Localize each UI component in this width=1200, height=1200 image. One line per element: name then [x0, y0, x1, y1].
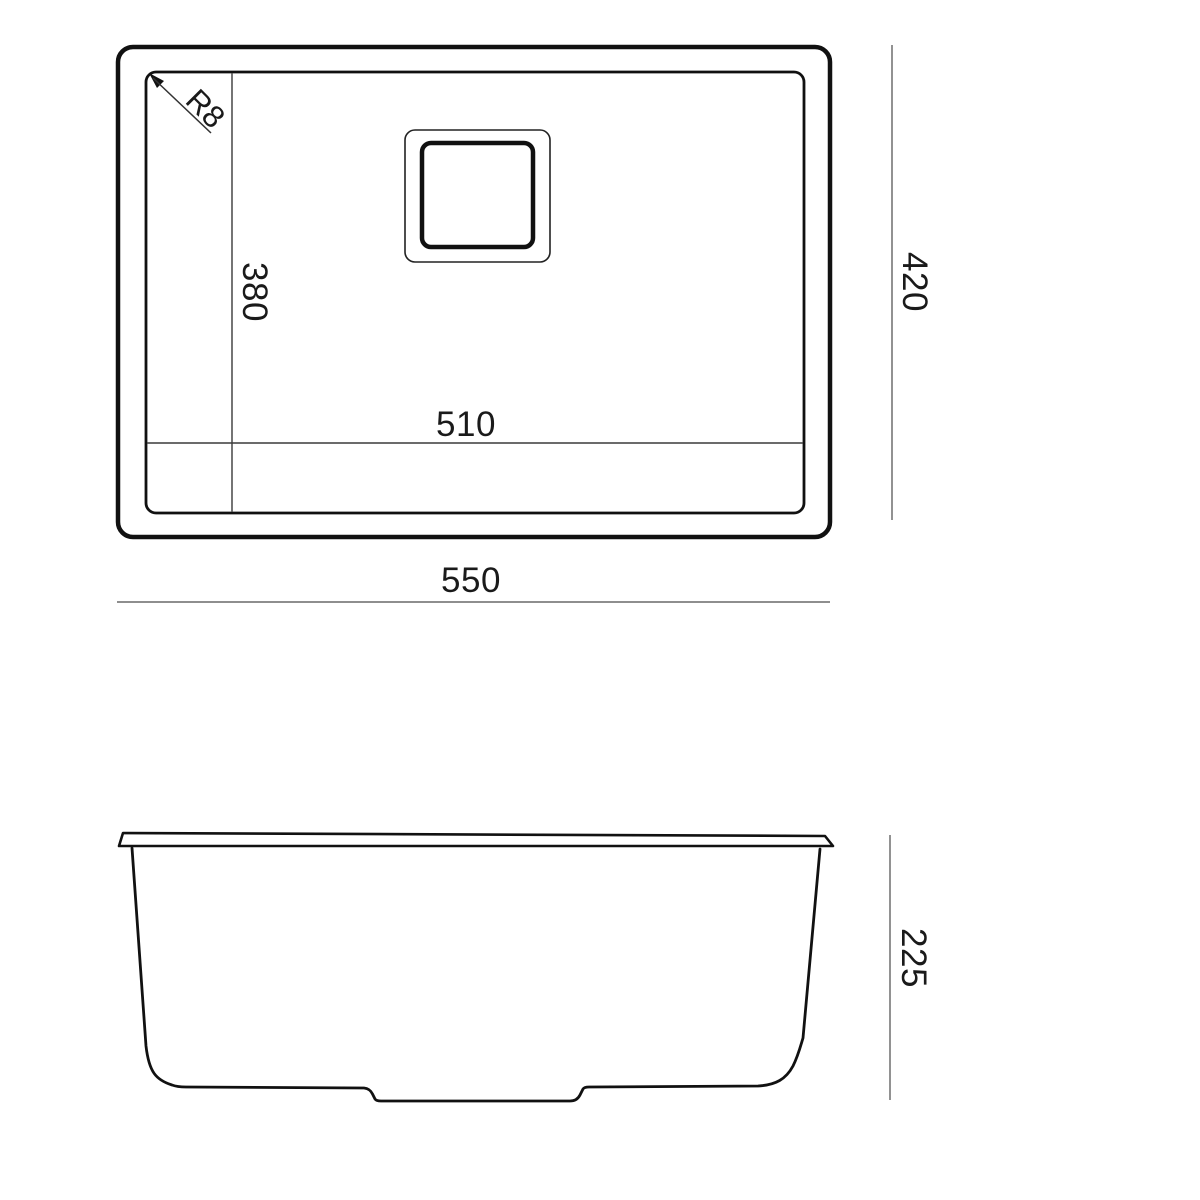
depth-label: 225 [894, 928, 933, 988]
sink-technical-drawing: R8 380 510 420 550 225 [0, 0, 1200, 1200]
drain-inner-square [422, 143, 533, 247]
top-view: R8 380 510 420 550 [117, 45, 934, 602]
inner-height-label: 380 [235, 262, 274, 322]
overall-height-label: 420 [895, 252, 934, 312]
overall-width-label: 550 [441, 561, 501, 600]
side-view: 225 [119, 833, 933, 1101]
inner-width-label: 510 [436, 405, 496, 444]
top-view-outer-rim-rect [118, 47, 830, 537]
drawing-canvas: R8 380 510 420 550 225 [0, 0, 1200, 1200]
side-view-rim-profile [119, 833, 833, 846]
side-view-bowl-profile [132, 848, 820, 1101]
